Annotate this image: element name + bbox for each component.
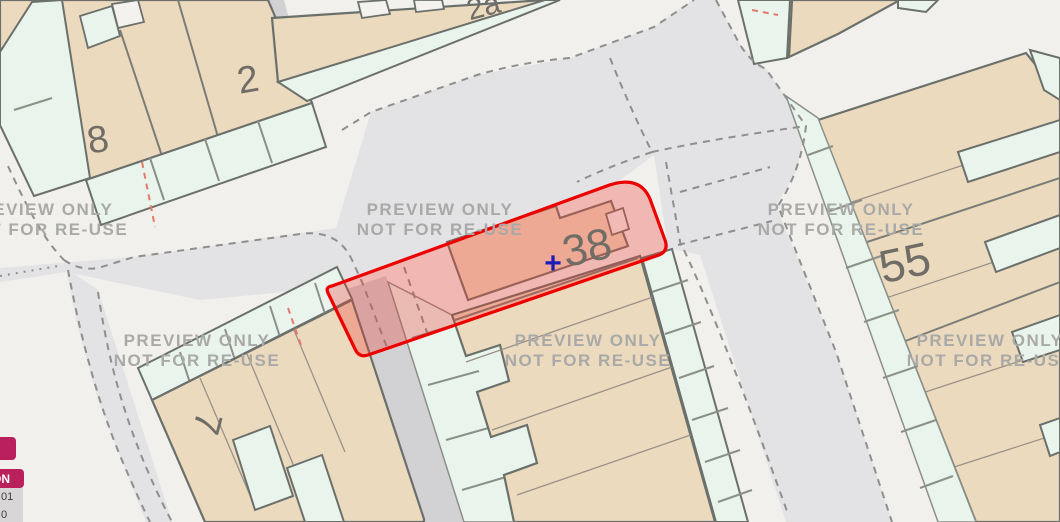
- svg-text:NOT FOR RE-USE: NOT FOR RE-USE: [505, 351, 671, 370]
- building-notch-white-2a-2: [414, 0, 444, 12]
- watermark-3: PREVIEW ONLY NOT FOR RE-USE: [758, 200, 924, 239]
- svg-text:PREVIEW ONLY: PREVIEW ONLY: [515, 331, 662, 350]
- building-notch-white-2a-1: [358, 0, 390, 18]
- house-number-55: 55: [874, 232, 935, 294]
- overlay-badge-fragment[interactable]: ON: [0, 469, 24, 488]
- watermark-4: PREVIEW ONLY NOT FOR RE-USE: [114, 331, 280, 370]
- watermark-5: PREVIEW ONLY NOT FOR RE-USE: [505, 331, 671, 370]
- watermark-6: PREVIEW ONLY NOT FOR RE-USE: [907, 331, 1060, 370]
- svg-text:PREVIEW ONLY: PREVIEW ONLY: [0, 200, 113, 219]
- map-viewport[interactable]: 8 2 2a 55 7 + 38 PREVIEW ONLY NOT FOR RE…: [0, 0, 1060, 522]
- overlay-button-fragment[interactable]: [0, 437, 16, 460]
- watermark-2: PREVIEW ONLY NOT FOR RE-USE: [357, 200, 523, 239]
- map-svg[interactable]: 8 2 2a 55 7 + 38 PREVIEW ONLY NOT FOR RE…: [0, 0, 1060, 522]
- svg-text:NOT FOR RE-USE: NOT FOR RE-USE: [357, 220, 523, 239]
- plot-marker-cross: +: [544, 247, 562, 280]
- watermark-1: PREVIEW ONLY NOT FOR RE-USE: [0, 200, 128, 239]
- svg-text:NOT FOR RE-USE: NOT FOR RE-USE: [0, 220, 128, 239]
- svg-text:PREVIEW ONLY: PREVIEW ONLY: [917, 331, 1060, 350]
- svg-text:NOT FOR RE-USE: NOT FOR RE-USE: [907, 351, 1060, 370]
- svg-text:PREVIEW ONLY: PREVIEW ONLY: [124, 331, 271, 350]
- svg-text:PREVIEW ONLY: PREVIEW ONLY: [768, 200, 915, 219]
- svg-text:PREVIEW ONLY: PREVIEW ONLY: [367, 200, 514, 219]
- svg-text:NOT FOR RE-USE: NOT FOR RE-USE: [114, 351, 280, 370]
- overlay-value-1: 01: [0, 490, 23, 504]
- plot-number-38: 38: [558, 219, 616, 277]
- svg-text:NOT FOR RE-USE: NOT FOR RE-USE: [758, 220, 924, 239]
- overlay-panel-fragment: 01 0: [0, 488, 23, 522]
- overlay-badge-label: ON: [0, 472, 10, 486]
- overlay-value-2: 0: [0, 508, 23, 522]
